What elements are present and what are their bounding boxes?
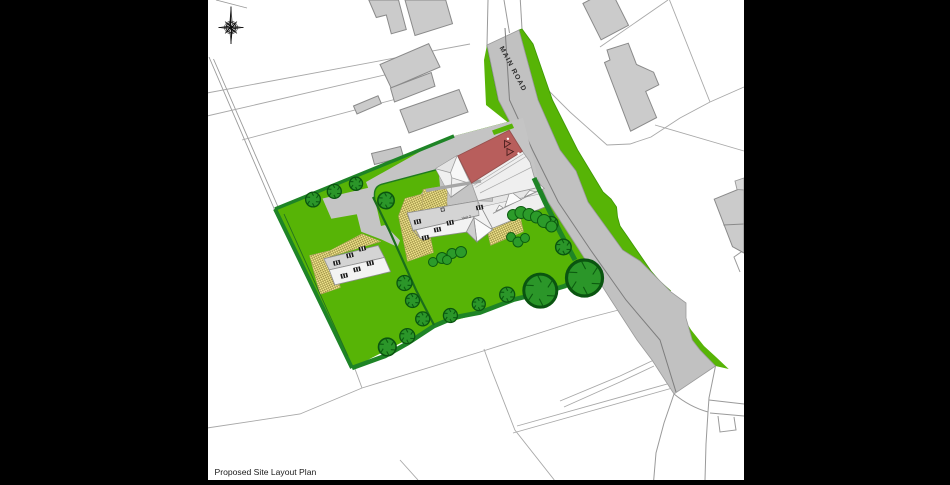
svg-text:Proposed Site Layout Plan: Proposed Site Layout Plan [215, 467, 317, 477]
